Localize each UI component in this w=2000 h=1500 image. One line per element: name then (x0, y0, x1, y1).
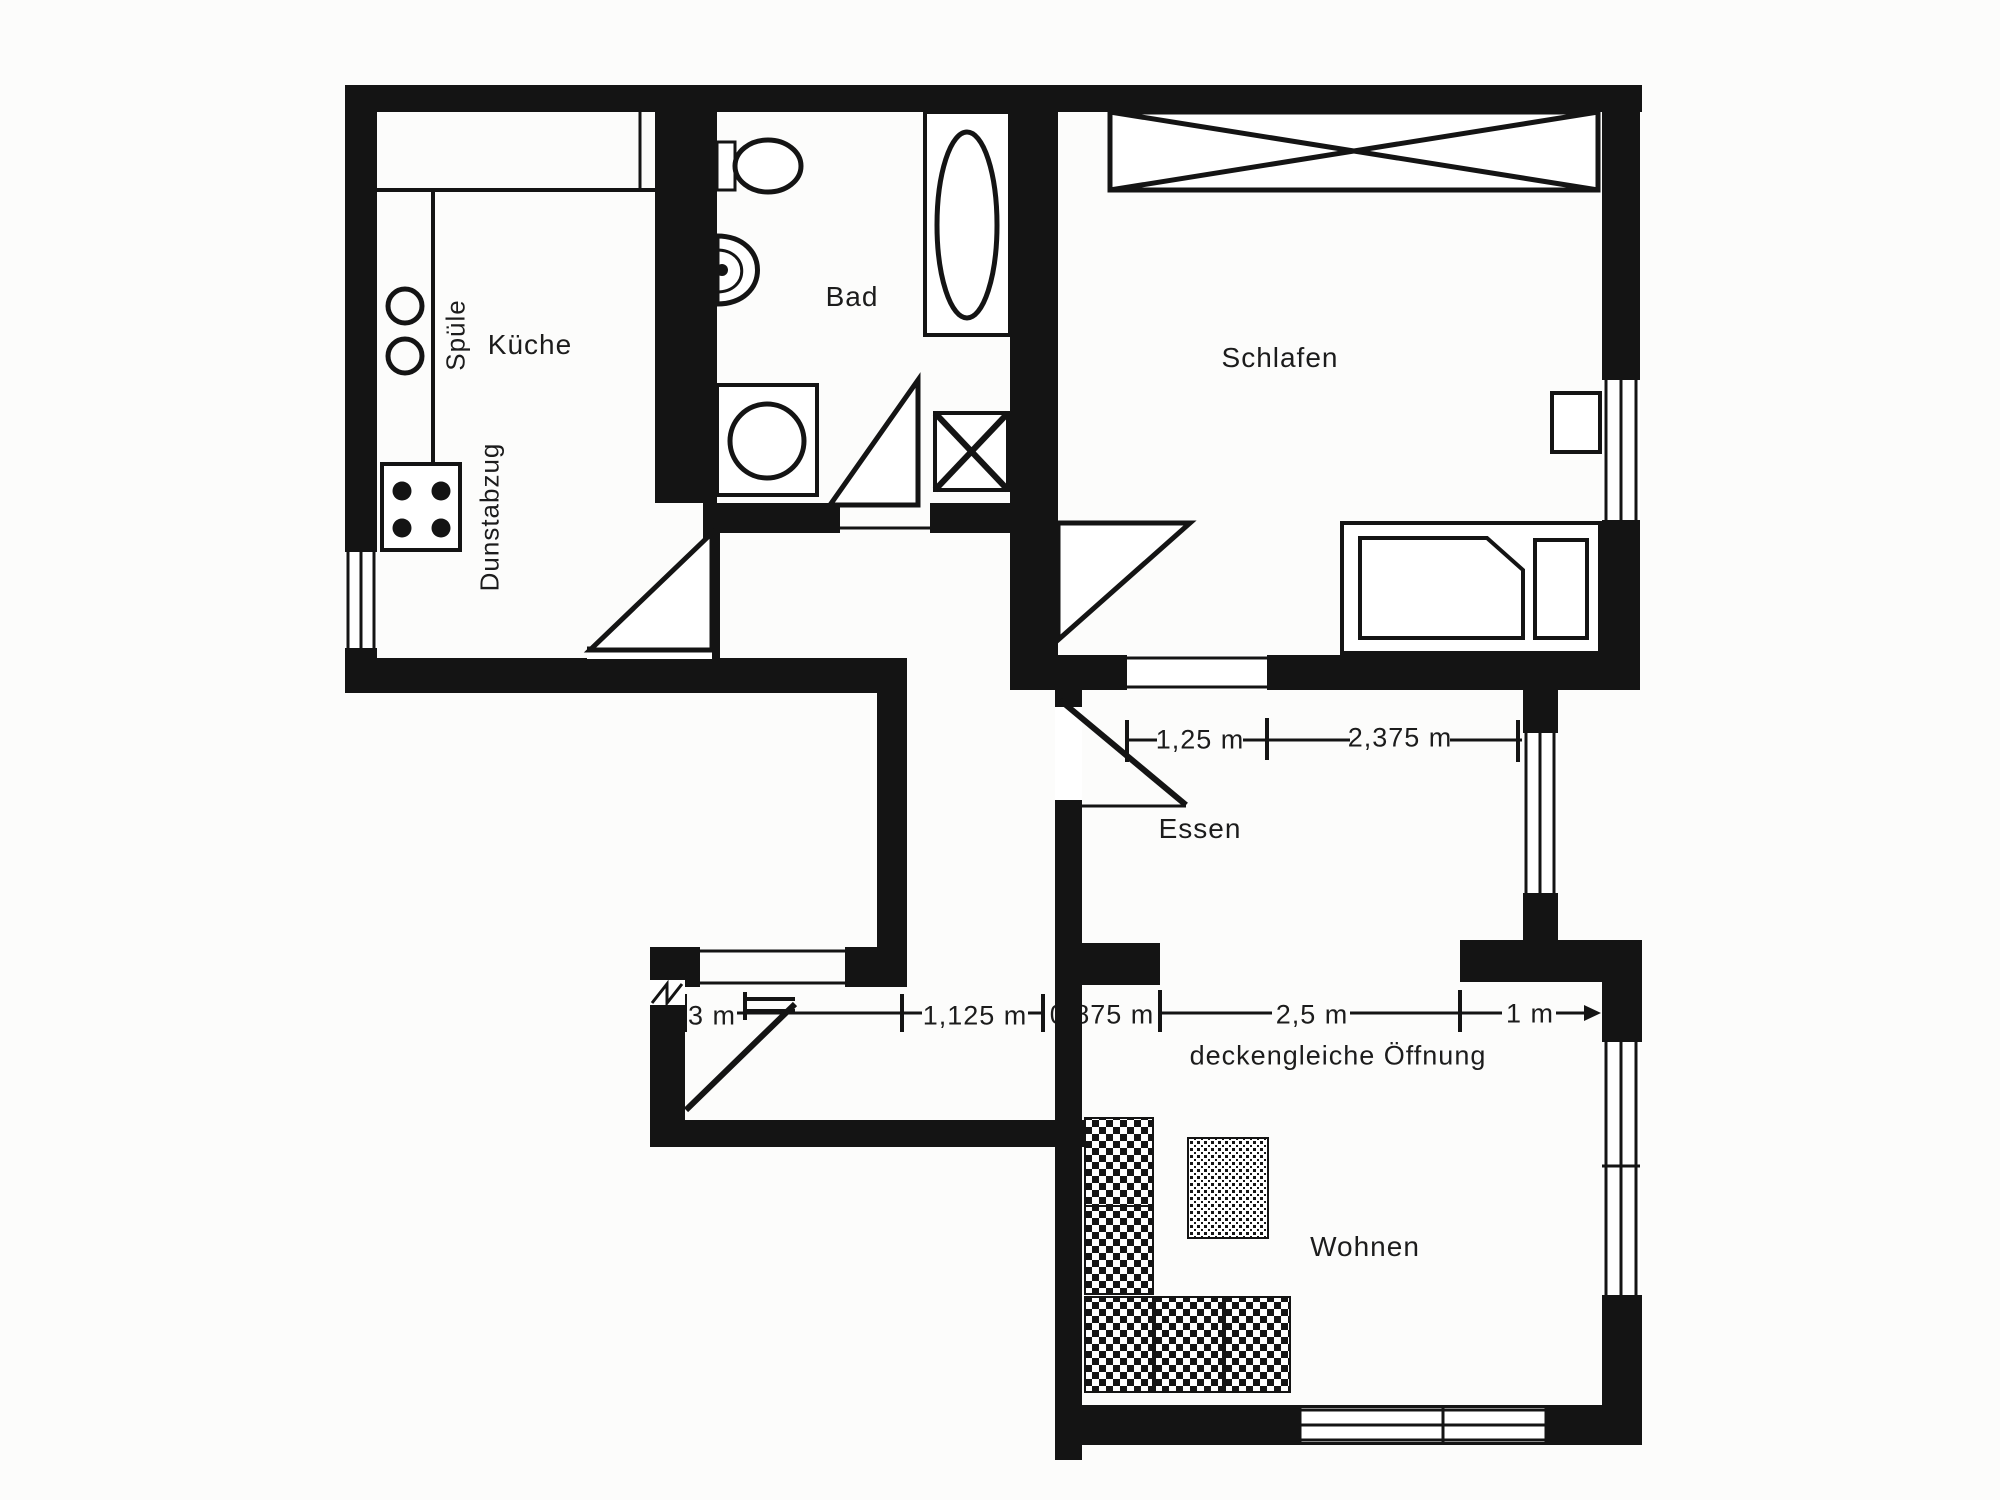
bathtub-icon (925, 112, 1010, 335)
room-label-kitchen: Küche (488, 329, 572, 361)
wall-opening-left-pier (1082, 943, 1160, 985)
door-swing-icon (830, 380, 918, 505)
window-icon (345, 552, 377, 648)
toilet-icon (717, 140, 801, 192)
wall-living-right-lower (1602, 1295, 1642, 1445)
room-label-living: Wohnen (1310, 1231, 1420, 1263)
dining-door-opening (1055, 707, 1082, 800)
dim-label-1: 1 m (1506, 999, 1554, 1030)
annotation-ceiling-opening: deckengleiche Öffnung (1190, 1041, 1487, 1072)
wardrobe-icon (1110, 112, 1598, 190)
wall-bath-bottom-left (717, 503, 840, 533)
wall-kitchen-bath-divider (655, 112, 717, 503)
wall-bedroom-right-upper (1602, 112, 1640, 380)
table-icon (1188, 1138, 1268, 1238)
duct-shaft-icon (935, 413, 1008, 490)
floorplan-canvas: 0,875 m (0, 0, 2000, 1500)
wall-living-left (1055, 800, 1082, 1460)
wall-bedroom-bottom-right (1267, 655, 1640, 690)
nightstand-icon (1552, 393, 1600, 452)
dim-label-1125: 1,125 m (923, 1001, 1028, 1032)
room-label-bedroom: Schlafen (1222, 342, 1339, 374)
counter-icon (377, 112, 655, 464)
wall-hall-bottom (650, 1120, 1085, 1147)
window-icon (1602, 380, 1640, 520)
wall-dining-right-upper (1523, 690, 1558, 733)
dim-label-25: 2,5 m (1276, 1000, 1349, 1031)
dim-label-125: 1,25 m (1156, 725, 1245, 756)
wall-top (345, 85, 1642, 112)
room-label-bath: Bad (826, 281, 879, 313)
window-icon (1523, 733, 1558, 893)
room-label-dining: Essen (1159, 813, 1242, 845)
wall-bedroom-bottom-left (1040, 655, 1127, 690)
window-icon (1602, 1042, 1640, 1295)
label-extractor-hood: Dunstabzug (475, 443, 506, 592)
washing-machine-icon (717, 385, 817, 495)
bedroom-opening (1127, 655, 1267, 690)
wall-opening-right-pier (1460, 940, 1642, 982)
stove-icon (382, 464, 460, 550)
wall-corridor-left (877, 658, 907, 987)
wall-kitchen-bottom (345, 658, 907, 693)
entrance-break (650, 980, 685, 1005)
wall-bedroom-right-lower (1602, 520, 1640, 690)
door-swing-icon (1058, 523, 1190, 640)
wall-hall-top-right (845, 947, 907, 987)
plan-drawing-layer (0, 0, 2000, 1500)
washbasin-icon (716, 236, 758, 304)
window-icon (1300, 1408, 1546, 1442)
label-sink: Spüle (441, 299, 472, 371)
wall-hall-left-upper (650, 947, 685, 980)
bed-icon (1342, 523, 1600, 653)
wall-living-right-upper (1602, 982, 1642, 1042)
wall-left-upper (345, 85, 377, 552)
wall-bath-bedroom-divider (1010, 112, 1058, 690)
sink-icon (388, 289, 422, 373)
dim-label-3: 3 m (688, 1001, 736, 1032)
dim-label-2375: 2,375 m (1348, 723, 1453, 754)
hall-door-sill (700, 951, 845, 983)
door-swing-icon (590, 533, 712, 650)
